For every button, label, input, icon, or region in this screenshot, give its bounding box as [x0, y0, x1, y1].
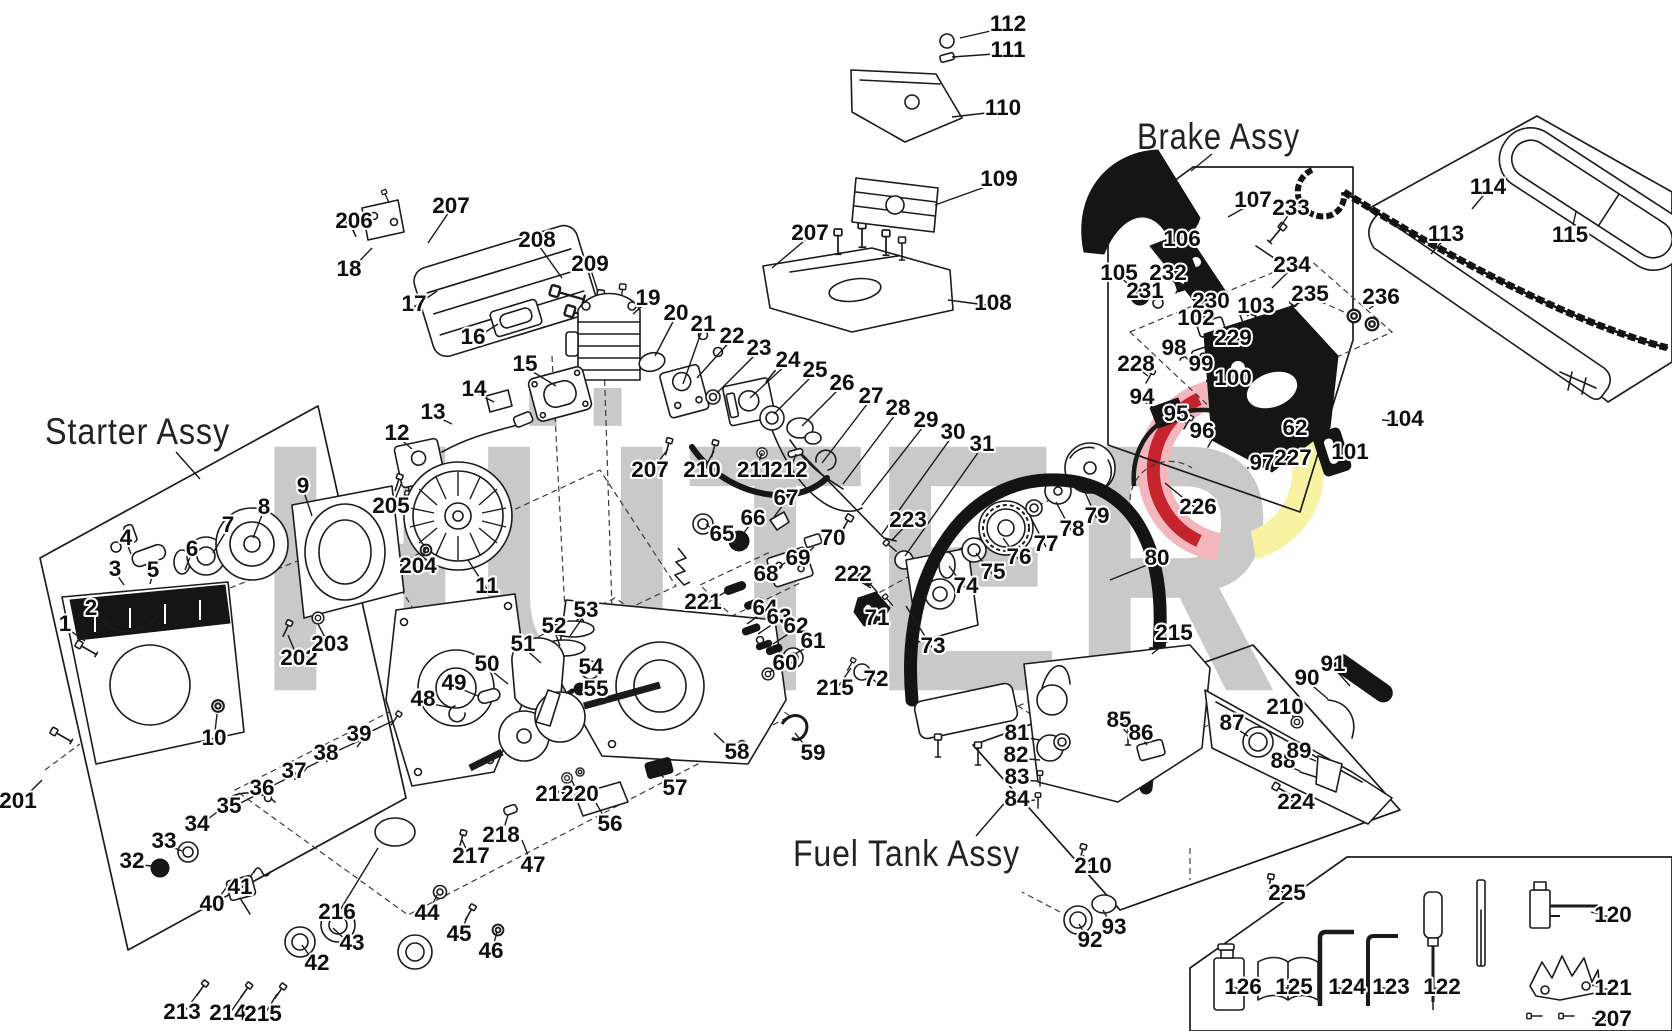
callout-36-79: 36	[249, 775, 274, 800]
callout-9-72: 9	[297, 473, 310, 498]
callout-203-75: 203	[311, 631, 349, 656]
callout-93-157: 93	[1101, 914, 1126, 939]
callout-209-12: 209	[571, 251, 609, 276]
callout-43-104: 43	[339, 930, 364, 955]
callout-201-76: 201	[0, 788, 37, 813]
brake-assy-label: Brake Assy	[1137, 116, 1300, 157]
callout-21-15: 21	[690, 311, 715, 336]
callout-39-82: 39	[346, 721, 371, 746]
callout-84-144: 84	[1004, 786, 1030, 811]
callout-5-68: 5	[147, 557, 160, 582]
callout-123-161: 123	[1372, 974, 1410, 999]
callout-73-52: 73	[920, 633, 945, 658]
callout-91-150: 91	[1320, 651, 1345, 676]
callout-38-81: 38	[313, 740, 338, 765]
callout-124-160: 124	[1328, 974, 1366, 999]
callout-207-165: 207	[1594, 1006, 1632, 1031]
callout-104-136: 104	[1386, 406, 1424, 431]
callout-210-148: 210	[1266, 694, 1304, 719]
callout-49-84: 49	[441, 670, 466, 695]
callout-215-63: 215	[1155, 620, 1193, 645]
callout-211-35: 211	[737, 457, 773, 482]
callout-205-20: 205	[372, 493, 410, 518]
callout-226-61: 226	[1179, 494, 1217, 519]
callout-23-24: 23	[746, 335, 771, 360]
callout-22-23: 22	[719, 323, 744, 348]
parts-diagram-page: HÜTER	[0, 0, 1672, 1031]
callout-58-93: 58	[724, 739, 749, 764]
callout-40-101: 40	[199, 891, 224, 916]
callout-80-60: 80	[1144, 545, 1169, 570]
callout-42-103: 42	[304, 950, 329, 975]
callout-13-18: 13	[420, 399, 445, 424]
callout-55-90: 55	[583, 676, 608, 701]
callout-212-36: 212	[770, 457, 808, 482]
callout-32-111: 32	[119, 848, 144, 873]
callout-98-125: 98	[1161, 335, 1186, 360]
callout-69-41: 69	[785, 545, 810, 570]
callout-113-139: 113	[1428, 221, 1464, 246]
spike-bumper-icon	[1530, 956, 1600, 1000]
callout-74-54: 74	[953, 573, 979, 598]
callout-26-27: 26	[829, 370, 854, 395]
washer-203	[312, 612, 324, 624]
callout-47-98: 47	[520, 852, 545, 877]
callout-217-99: 217	[452, 843, 490, 868]
file-icon	[1477, 880, 1485, 966]
callout-115-140: 115	[1552, 222, 1588, 247]
callout-225-154: 225	[1268, 880, 1306, 905]
callout-52-87: 52	[541, 613, 566, 638]
exploded-diagram-canvas: HÜTER	[0, 0, 1672, 1031]
callout-107-113: 107	[1234, 187, 1272, 212]
callout-27-28: 27	[858, 383, 883, 408]
callout-222-44: 222	[834, 561, 872, 586]
callout-223-53: 223	[889, 507, 927, 532]
callout-208-11: 208	[518, 227, 556, 252]
socket-wrench-icon	[1530, 882, 1598, 928]
callout-79-59: 79	[1084, 503, 1109, 528]
callout-112-0: 112	[990, 11, 1026, 36]
fuel-tank-assy-leader	[976, 799, 1008, 836]
callout-102-121: 102	[1177, 305, 1215, 330]
callout-94-129: 94	[1129, 384, 1155, 409]
callout-61-48: 61	[800, 628, 825, 653]
callout-96-131: 96	[1189, 418, 1214, 443]
cover-knob-drawing	[939, 34, 954, 63]
callout-108-4: 108	[974, 290, 1012, 315]
callout-62-134: 62	[1282, 415, 1307, 440]
callout-231-119: 231	[1126, 278, 1164, 303]
callout-236-137: 236	[1362, 284, 1400, 309]
callout-53-88: 53	[573, 597, 598, 622]
callout-100-127: 100	[1214, 365, 1252, 390]
callout-210-155: 210	[1074, 853, 1112, 878]
callout-227-133: 227	[1274, 445, 1312, 470]
callout-7-70: 7	[222, 512, 235, 537]
starter-assy-leader	[176, 452, 200, 479]
callout-17-9: 17	[401, 291, 426, 316]
callout-97-132: 97	[1249, 450, 1274, 475]
callout-215-62: 215	[816, 675, 854, 700]
callout-51-86: 51	[510, 631, 535, 656]
callout-122-162: 122	[1423, 974, 1461, 999]
callout-92-156: 92	[1077, 927, 1102, 952]
callout-77-57: 77	[1033, 531, 1058, 556]
callout-233-114: 233	[1272, 195, 1310, 220]
callout-30-31: 30	[940, 419, 965, 444]
starter-assy-label: Starter Assy	[45, 411, 230, 452]
callout-45-106: 45	[446, 921, 471, 946]
callout-76-56: 76	[1006, 544, 1031, 569]
callout-57-92: 57	[662, 775, 687, 800]
callout-234-116: 234	[1273, 252, 1311, 277]
callout-25-26: 25	[802, 357, 827, 382]
callout-46-107: 46	[478, 938, 503, 963]
callout-66-38: 66	[740, 505, 765, 530]
callout-106-115: 106	[1163, 226, 1201, 251]
callout-75-55: 75	[980, 559, 1005, 584]
callout-90-149: 90	[1294, 665, 1319, 690]
callout-207-7: 207	[432, 193, 470, 218]
callout-60-49: 60	[772, 650, 797, 675]
callout-44-105: 44	[414, 900, 440, 925]
callout-216-100: 216	[318, 899, 356, 924]
callout-120-163: 120	[1594, 902, 1632, 927]
air-filter-cover-drawing	[851, 70, 962, 142]
callout-87-147: 87	[1219, 710, 1244, 735]
callout-8-71: 8	[258, 494, 271, 519]
callout-24-25: 24	[775, 347, 801, 372]
callout-111-1: 111	[990, 37, 1025, 62]
callout-28-29: 28	[885, 395, 910, 420]
callout-110-2: 110	[985, 95, 1021, 120]
callout-126-158: 126	[1224, 974, 1262, 999]
callout-1-64: 1	[59, 611, 72, 636]
callout-2-65: 2	[85, 595, 98, 620]
callout-204-21: 204	[399, 553, 437, 578]
callout-210-34: 210	[683, 457, 721, 482]
callout-33-112: 33	[151, 828, 176, 853]
callout-35-78: 35	[216, 793, 241, 818]
callout-109-3: 109	[980, 166, 1018, 191]
callout-4-67: 4	[120, 525, 133, 550]
callout-221-43: 221	[684, 589, 722, 614]
callout-14-17: 14	[461, 376, 487, 401]
callout-6-69: 6	[186, 536, 199, 561]
nut-10	[212, 700, 224, 712]
callout-65-37: 65	[709, 521, 734, 546]
callout-68-40: 68	[753, 561, 778, 586]
callout-99-126: 99	[1188, 351, 1213, 376]
callout-37-80: 37	[281, 758, 306, 783]
callout-18-8: 18	[336, 256, 361, 281]
callout-19-13: 19	[635, 285, 660, 310]
callout-103-122: 103	[1237, 293, 1275, 318]
callout-224-153: 224	[1277, 789, 1315, 814]
callout-229-124: 229	[1214, 325, 1252, 350]
callout-31-32: 31	[969, 431, 994, 456]
callout-235-123: 235	[1291, 281, 1329, 306]
callout-48-83: 48	[410, 686, 435, 711]
callout-41-102: 41	[227, 874, 252, 899]
callout-214-109: 214	[209, 1000, 247, 1025]
callout-78-58: 78	[1059, 516, 1084, 541]
fuel-tank-assy-label: Fuel Tank Assy	[793, 833, 1020, 874]
callout-34-77: 34	[184, 811, 210, 836]
callout-20-14: 20	[663, 300, 688, 325]
callout-10-73: 10	[201, 725, 226, 750]
callout-213-108: 213	[163, 999, 201, 1024]
air-filter-drawing	[852, 178, 938, 232]
callout-125-159: 125	[1275, 974, 1313, 999]
callout-89-152: 89	[1286, 738, 1311, 763]
callout-59-94: 59	[800, 740, 825, 765]
callout-95-130: 95	[1163, 401, 1188, 426]
callout-12-19: 12	[384, 420, 409, 445]
callout-101-135: 101	[1331, 439, 1369, 464]
callout-220-96: 220	[561, 781, 599, 806]
callout-11-22: 11	[475, 573, 499, 598]
kit-screws-icon	[1527, 1013, 1574, 1018]
callout-215-110: 215	[244, 1001, 282, 1026]
callout-207-5: 207	[791, 220, 829, 245]
callout-56-91: 56	[597, 811, 622, 836]
callout-86-146: 86	[1128, 720, 1153, 745]
callout-207-33: 207	[631, 457, 669, 482]
callout-29-30: 29	[913, 407, 938, 432]
callout-72-51: 72	[863, 666, 888, 691]
callout-228-128: 228	[1117, 351, 1155, 376]
callout-114-138: 114	[1470, 174, 1507, 199]
callout-121-164: 121	[1594, 975, 1632, 1000]
callout-15-16: 15	[512, 351, 537, 376]
callout-70-42: 70	[820, 525, 845, 550]
callout-67-39: 67	[773, 485, 798, 510]
callout-50-85: 50	[474, 651, 499, 676]
callout-206-6: 206	[335, 208, 373, 233]
callout-71-50: 71	[864, 605, 889, 630]
callout-3-66: 3	[109, 556, 122, 581]
callout-16-10: 16	[460, 324, 485, 349]
